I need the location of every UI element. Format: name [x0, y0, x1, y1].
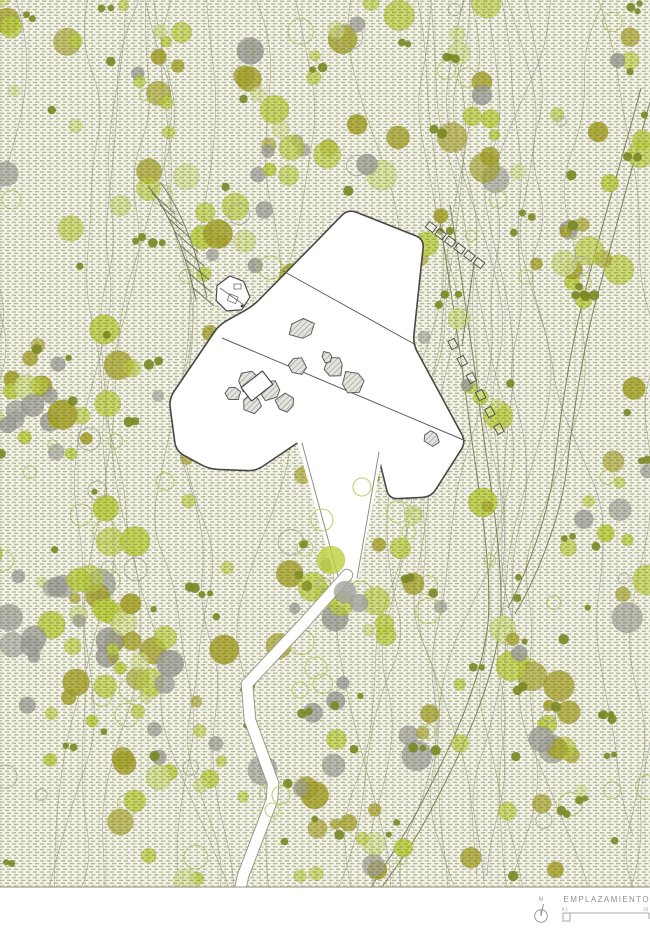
scale-group: EMPLAZAMIENTO 0 1 10: [560, 893, 650, 922]
scale-left-label: 0 1: [562, 907, 568, 912]
scale-right-label: 10: [643, 907, 648, 912]
north-arrow: N: [528, 897, 554, 927]
scale-bar: 0 1 10: [562, 906, 650, 922]
plan-title: EMPLAZAMIENTO: [563, 895, 650, 904]
compass-icon: [531, 903, 551, 927]
site-plan-map: [0, 0, 650, 888]
legend: N EMPLAZAMIENTO 0 1 10: [528, 893, 650, 931]
site-plan-sheet: N EMPLAZAMIENTO 0 1 10: [0, 0, 650, 932]
